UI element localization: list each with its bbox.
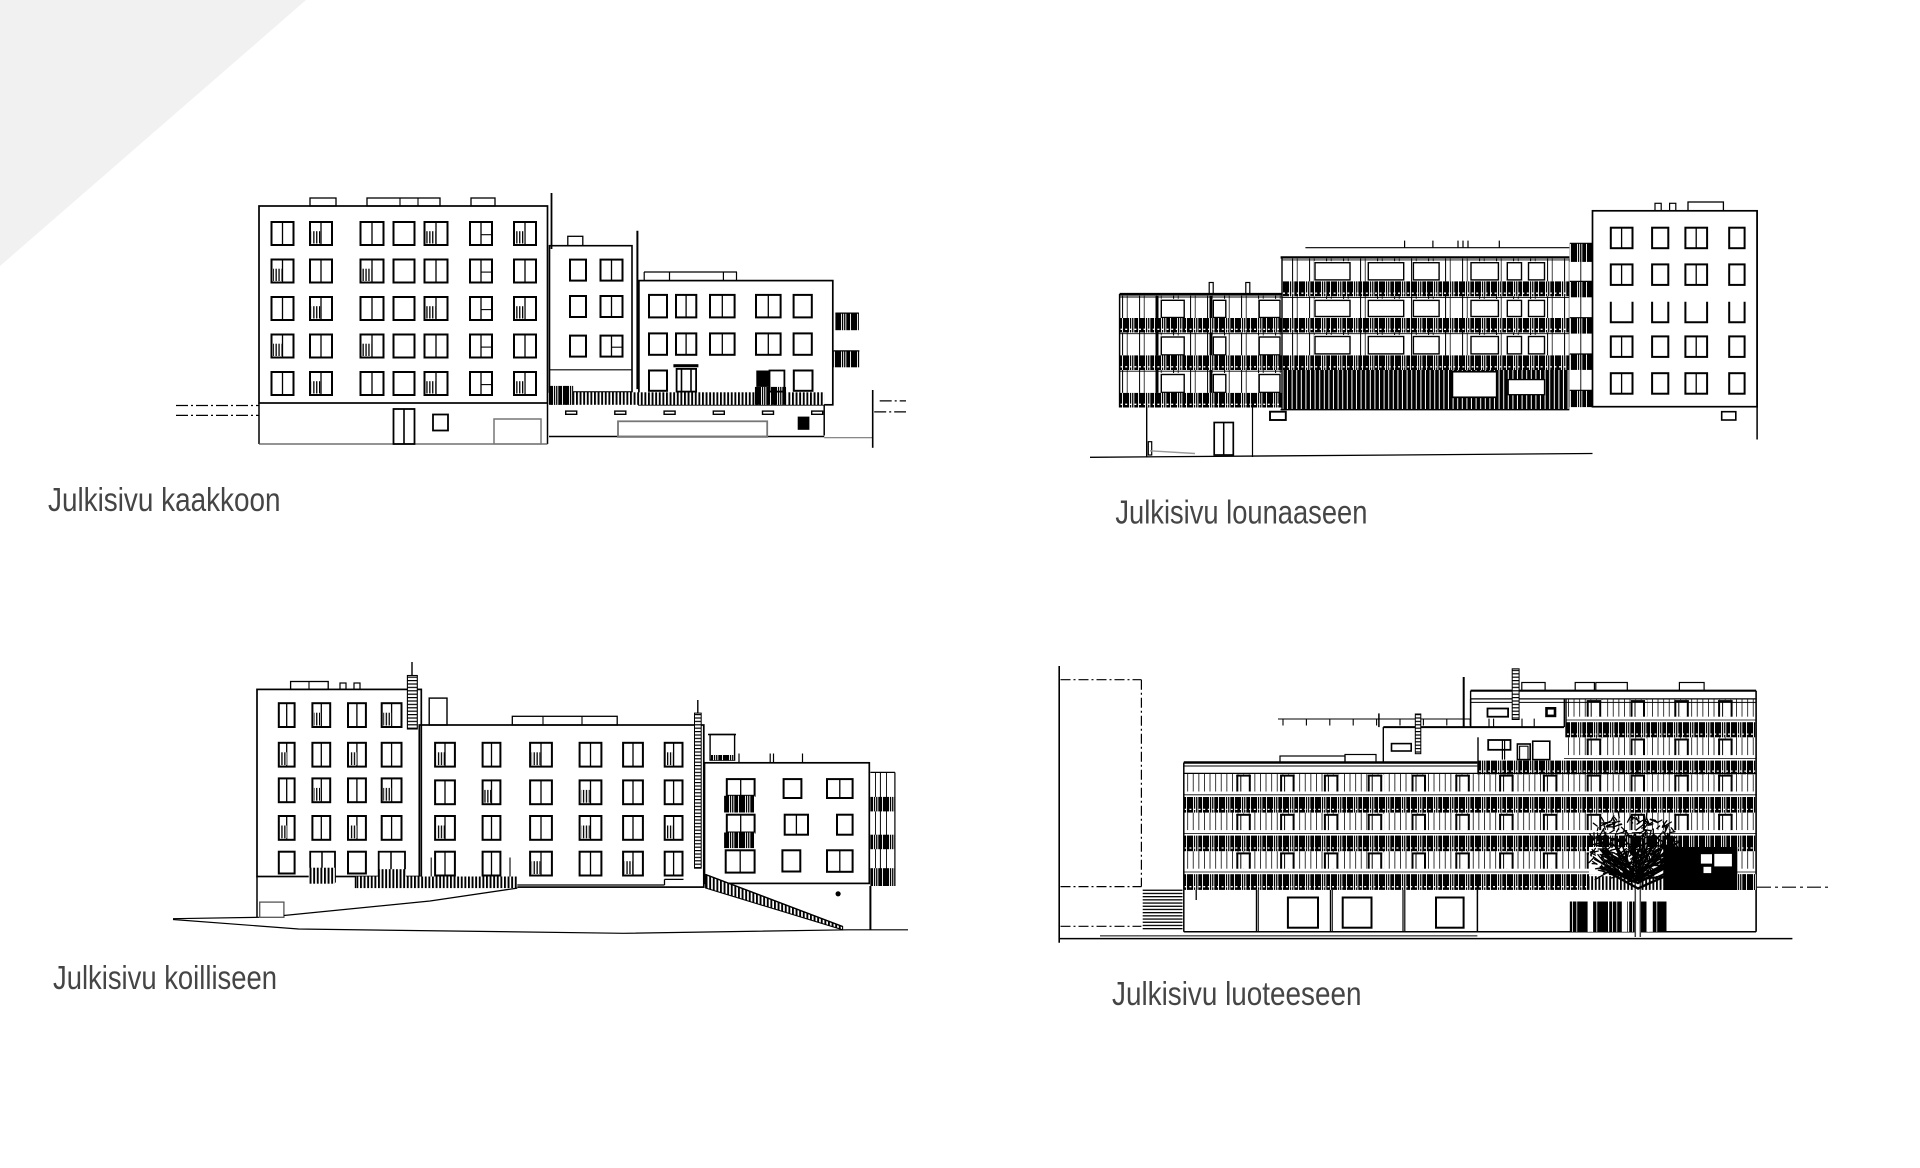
- svg-text:Julkisivu luoteeseen: Julkisivu luoteeseen: [1112, 975, 1362, 1012]
- svg-text:Julkisivu kaakkoon: Julkisivu kaakkoon: [48, 481, 281, 518]
- svg-text:Julkisivu koilliseen: Julkisivu koilliseen: [53, 959, 277, 996]
- svg-text:Julkisivu lounaaseen: Julkisivu lounaaseen: [1115, 494, 1367, 531]
